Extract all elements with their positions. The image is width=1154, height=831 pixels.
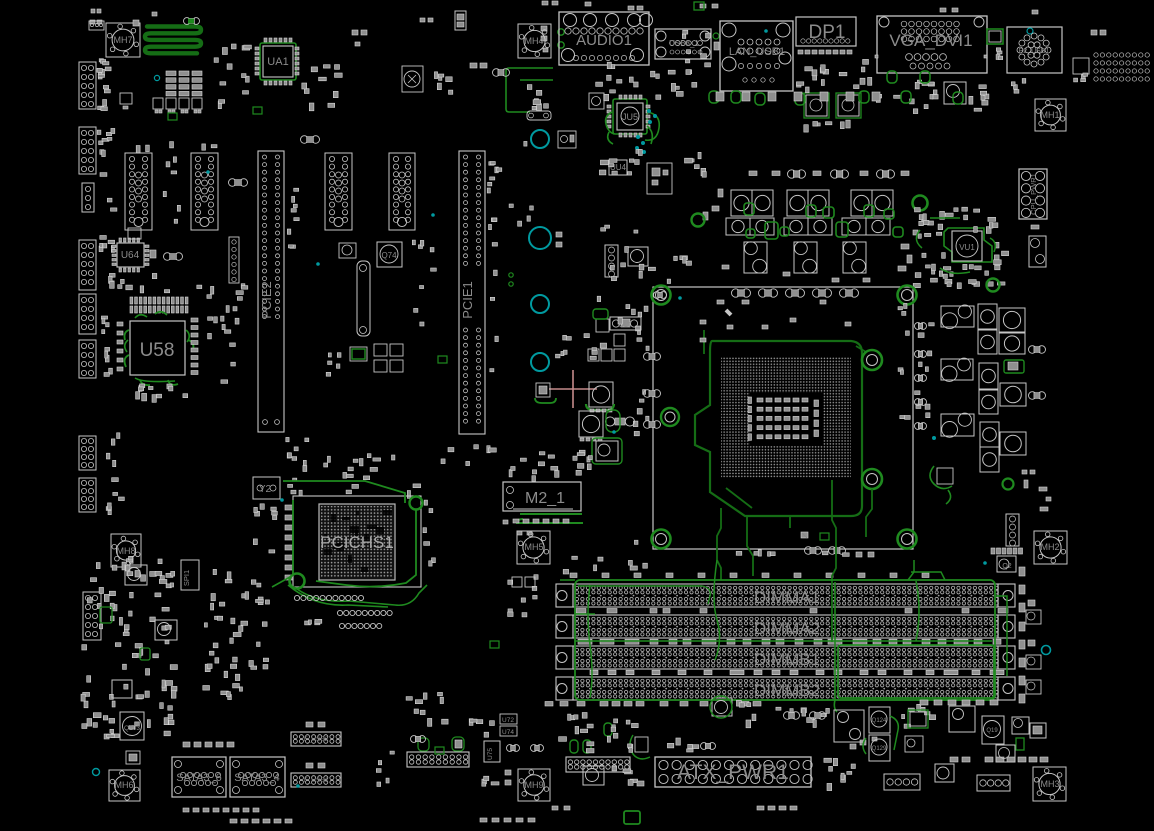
svg-text:MH1: MH1: [1040, 110, 1059, 120]
svg-text:MH3: MH3: [1040, 779, 1059, 789]
svg-text:F_USB2: F_USB2: [304, 736, 329, 743]
svg-text:SPI1: SPI1: [182, 570, 191, 586]
svg-text:CPU_PWR1: CPU_PWR1: [1029, 173, 1038, 215]
svg-text:SATA3_6: SATA3_6: [176, 772, 221, 784]
svg-text:DIMMB1: DIMMB1: [754, 650, 820, 669]
svg-text:JU5: JU5: [622, 112, 638, 122]
svg-text:U74: U74: [502, 729, 514, 736]
svg-text:PCICHS1: PCICHS1: [320, 533, 394, 552]
svg-text:MH4: MH4: [524, 36, 543, 46]
svg-text:DIMMB2: DIMMB2: [754, 681, 820, 700]
svg-text:AUDIO1: AUDIO1: [576, 32, 632, 49]
svg-text:LAN_USB1: LAN_USB1: [729, 46, 785, 58]
svg-text:Y2: Y2: [259, 484, 272, 495]
svg-text:F_USB1: F_USB1: [304, 777, 329, 784]
svg-text:Q2: Q2: [1002, 563, 1011, 570]
svg-text:ATX_PWR1: ATX_PWR1: [677, 761, 789, 784]
svg-text:VU1: VU1: [959, 243, 975, 252]
svg-text:MH6: MH6: [114, 780, 133, 790]
svg-text:Q74: Q74: [381, 251, 397, 260]
svg-text:Q124: Q124: [872, 718, 887, 724]
svg-text:MH7: MH7: [113, 35, 132, 45]
svg-text:VGA_DVI1: VGA_DVI1: [889, 31, 972, 50]
svg-text:U75: U75: [487, 748, 494, 760]
svg-text:DIMMA1: DIMMA1: [754, 588, 820, 607]
svg-text:MH2: MH2: [1040, 542, 1059, 552]
svg-text:Q19: Q19: [986, 728, 998, 734]
svg-text:SATA3_4: SATA3_4: [234, 772, 279, 784]
svg-text:USB3_1: USB3_1: [669, 39, 699, 48]
svg-text:PCIE2: PCIE2: [259, 281, 274, 319]
svg-text:UA1: UA1: [267, 56, 288, 68]
svg-text:Q103: Q103: [124, 725, 140, 732]
svg-text:MH9: MH9: [524, 780, 543, 790]
svg-text:U72: U72: [502, 717, 514, 724]
svg-text:M2_1: M2_1: [525, 490, 565, 507]
svg-text:U64: U64: [121, 250, 140, 261]
svg-text:P2_USB1: P2_USB1: [1019, 48, 1050, 55]
svg-text:PCIE1: PCIE1: [460, 281, 475, 319]
svg-text:MH8: MH8: [116, 546, 135, 556]
svg-text:MH5: MH5: [524, 542, 543, 552]
svg-text:U58: U58: [140, 340, 175, 361]
svg-text:Q129: Q129: [872, 746, 887, 752]
svg-text:DIMMA2: DIMMA2: [754, 619, 820, 638]
